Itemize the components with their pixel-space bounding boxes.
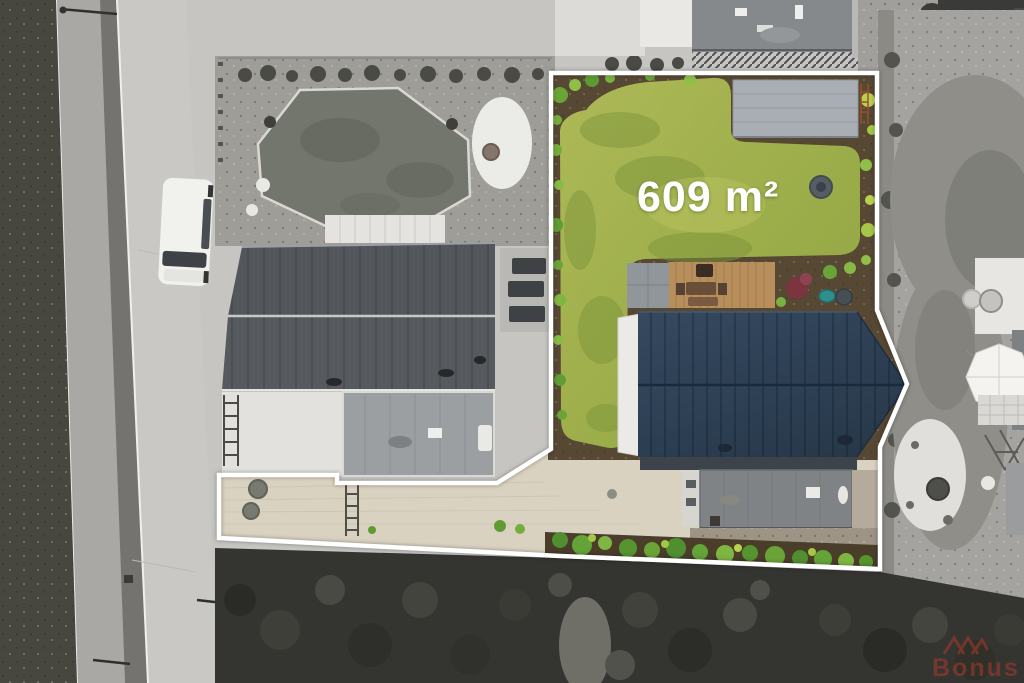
neighbor-house [222,243,495,476]
parked-van [157,177,215,288]
hot-tub [819,290,835,302]
right-neighbor-garden [878,10,1024,602]
drain-box [124,575,133,583]
building-wall [640,0,692,47]
watermark-logo-icon [942,634,988,656]
house-wall [618,314,640,456]
bbq-grill [696,264,713,277]
main-house [618,312,907,457]
bench [688,297,718,306]
gravel-patio [472,97,532,189]
terrace-strip [692,52,858,68]
van-windshield [162,251,207,268]
aerial-photo: 609 m² Bonus [0,0,1024,683]
sand-area [894,419,966,531]
sandbox-cover [927,478,949,500]
watermark-text: Bonus [932,654,1020,682]
sun-loungers [508,258,546,322]
louver-deck [1006,463,1024,535]
table [686,282,716,295]
neighbor-garage [343,392,494,476]
terrace-deck [627,262,775,308]
aerial-scene [0,0,1024,683]
area-label: 609 m² [637,173,779,222]
fire-bowl-neighbor [483,144,499,160]
paver-pad [733,80,858,137]
neighbor-yard [222,392,343,476]
watermark: Bonus [932,634,1024,681]
manhole [243,503,259,519]
lamp-head-icon [60,7,67,14]
manhole [249,480,267,498]
top-building-roof [692,0,858,52]
